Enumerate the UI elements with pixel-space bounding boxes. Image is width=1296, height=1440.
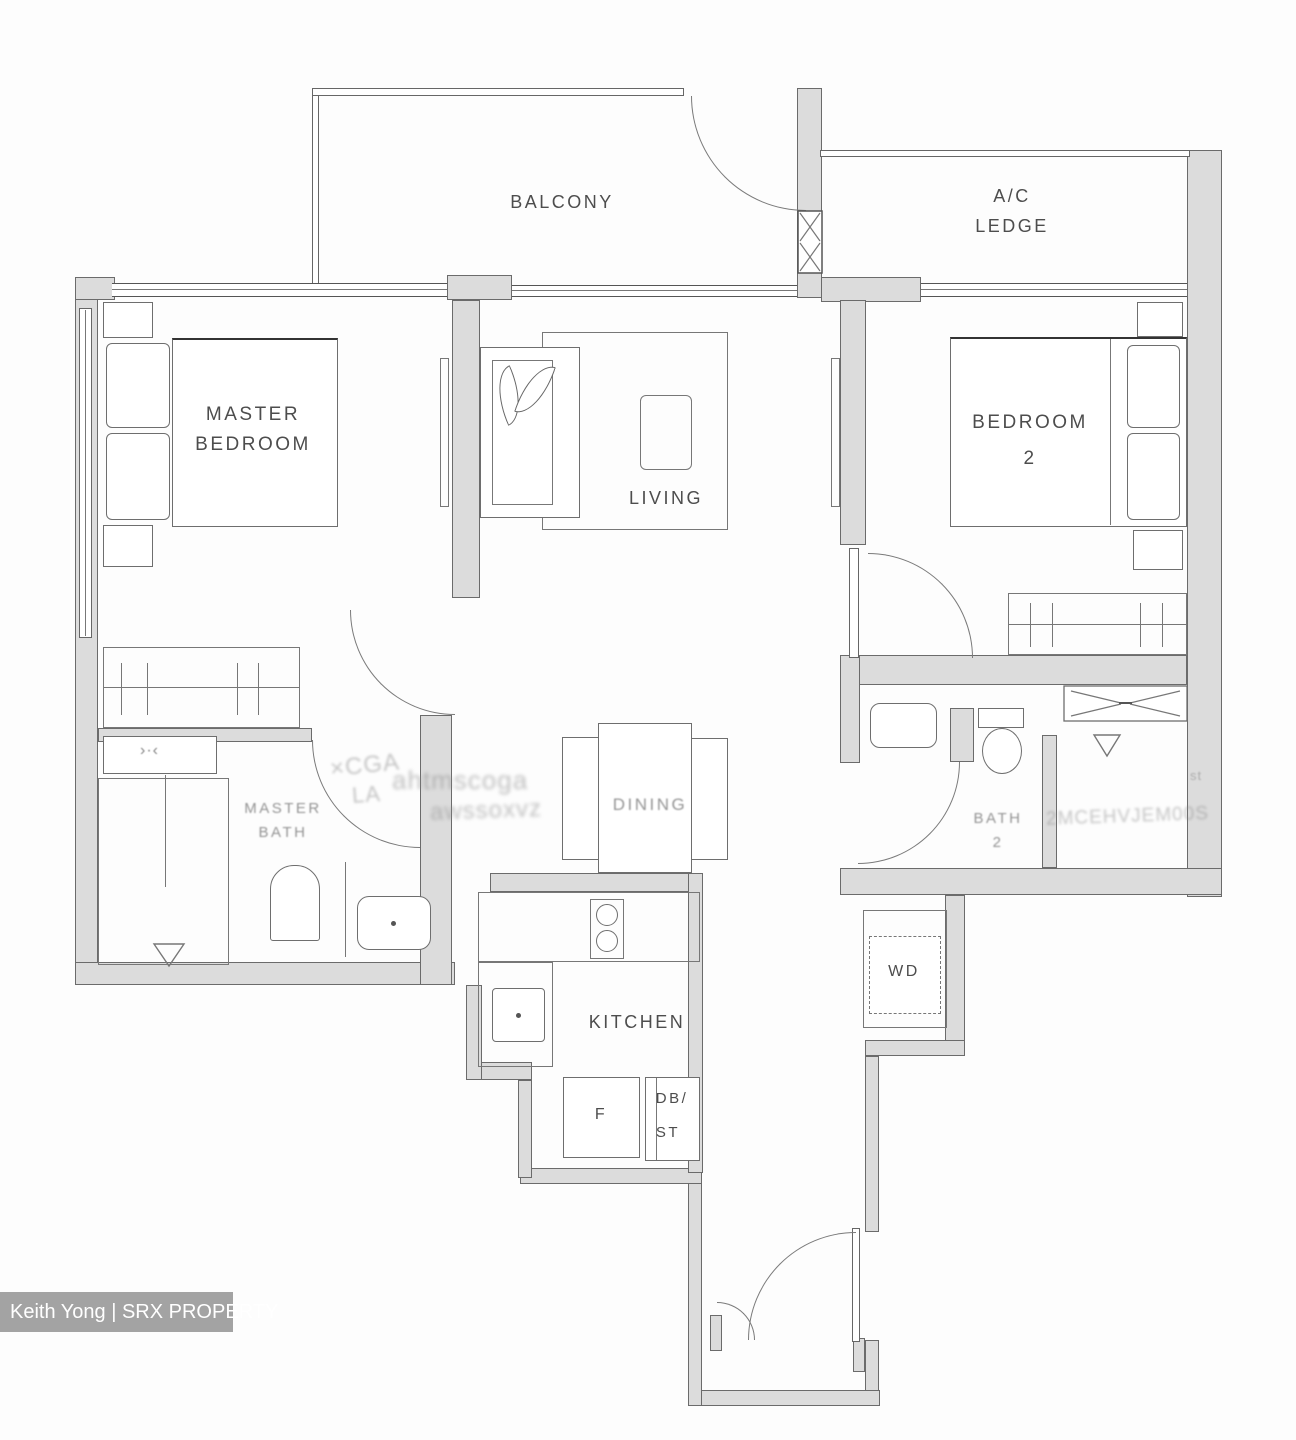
floor-plan: ›·‹ [0, 0, 1296, 1440]
mb-vanity-marks: ›·‹ [140, 742, 159, 760]
wall-top-left-pillar [75, 277, 115, 300]
wall-br2-bath2 [845, 655, 1187, 685]
br2-wardrobe-rod [1008, 624, 1187, 625]
watermark: Keith Yong | SRX PROPERTY [0, 1292, 233, 1332]
living-label: LIVING [629, 488, 703, 509]
bath2-shower-drain-icon [1092, 733, 1122, 759]
wall-step-vert [518, 1080, 532, 1178]
wall-bath2-bottom [840, 868, 1222, 895]
wall-living-br2 [840, 300, 866, 545]
bath2-sink [870, 703, 937, 748]
wall-entry-stub-right [853, 1338, 865, 1372]
mb-side-window-line [85, 310, 86, 636]
mb-pillow-1 [106, 343, 170, 428]
mb-shower [98, 778, 229, 965]
balcony-rail-top [312, 88, 684, 96]
dining-label: DINING [613, 795, 688, 815]
fridge-label: F [595, 1106, 607, 1124]
mb-toilet [270, 865, 320, 941]
wall-bath2-left [840, 655, 860, 763]
living-sliding-line [512, 290, 797, 291]
br2-door-leaf [849, 548, 859, 658]
kitchen-sink-drain [516, 1013, 521, 1018]
mb-bath-divider [345, 862, 346, 957]
dining-chair-right [690, 738, 728, 860]
mb-sink-drain [391, 921, 396, 926]
ac-ledge-label-2: LEDGE [975, 216, 1049, 237]
mb-nightstand-bottom [103, 525, 153, 567]
stove-burner-2 [596, 930, 618, 952]
bath2-label-2: 2 [993, 834, 1004, 851]
mb-wardrobe-tick1 [121, 663, 122, 715]
wall-bath-bottom [75, 962, 455, 985]
master-bedroom-door-arc [350, 610, 455, 715]
bath2-label-1: BATH [974, 810, 1023, 827]
bath2-toilet-tank [978, 708, 1024, 728]
wall-kitchen-bottom [520, 1168, 702, 1184]
br2-nightstand-bottom [1133, 530, 1183, 570]
entrance-door-arc [748, 1232, 856, 1340]
br2-nightstand-top [1137, 302, 1183, 337]
wall-wd-jog [865, 1040, 965, 1056]
mb-window-line [112, 289, 447, 290]
db-label-1: DB/ [656, 1090, 689, 1107]
master-bath-label-2: BATH [259, 824, 308, 841]
wall-hall-left [688, 1170, 702, 1406]
wall-bath2-shower [1042, 735, 1057, 868]
wall-mb-living [452, 300, 480, 598]
br2-wardrobe-tick2 [1052, 603, 1053, 647]
balcony-door-box-icon [797, 210, 823, 274]
wall-hall-right-upper [865, 1056, 879, 1232]
ac-ledge-label-1: A/C [993, 186, 1031, 207]
mb-shower-drain-icon [152, 942, 186, 968]
wall-bottom [690, 1390, 880, 1406]
coffee-table [640, 395, 692, 470]
mb-bed [172, 338, 338, 527]
master-bath-label-1: MASTER [244, 800, 322, 817]
wall-kitchen-top [490, 873, 702, 892]
br2-wardrobe-tick1 [1030, 603, 1031, 647]
stove-burner-1 [596, 904, 618, 926]
br2-door-arc [868, 553, 973, 658]
mb-vanity [103, 736, 217, 774]
br2-window-line [921, 289, 1187, 290]
bath2-door-arc [858, 762, 960, 864]
mb-pillow-2 [106, 433, 170, 520]
wall-br2-top-pillar [821, 277, 921, 302]
mb-wardrobe-rod [103, 687, 300, 688]
master-bedroom-label-1: MASTER [206, 404, 300, 426]
bedroom2-label-2: 2 [1023, 448, 1036, 470]
bath2-ledge-icon [1063, 685, 1188, 722]
br2-bed-headboard [1110, 339, 1111, 525]
br2-wardrobe-tick3 [1140, 603, 1141, 647]
mb-wardrobe-tick4 [258, 663, 259, 715]
wall-pillar-mid-top [447, 275, 512, 300]
master-bedroom-label-2: BEDROOM [195, 434, 311, 456]
wall-bath2-stub [950, 708, 974, 762]
remnant-scribble-4: awssoxvz [430, 795, 543, 827]
entrance-small-leaf-arc [717, 1302, 755, 1340]
bedroom2-label-1: BEDROOM [972, 412, 1088, 434]
dining-chair-left [562, 737, 600, 860]
kitchen-counter-top [478, 892, 700, 962]
mb-wardrobe-tick3 [237, 663, 238, 715]
ac-ledge-top-line [820, 150, 1190, 157]
remnant-scribble-3: ahtmscoga [392, 765, 528, 796]
br2-wardrobe-tick4 [1162, 603, 1163, 647]
mb-shower-hose [165, 775, 166, 887]
wall-wd-right [945, 895, 965, 1045]
tv-panel-mb [440, 358, 449, 507]
mb-wardrobe-tick2 [147, 663, 148, 715]
remnant-scribble-6: st [1190, 768, 1202, 783]
remnant-scribble-5: 2MCEHVJEM00S [1046, 803, 1210, 831]
balcony-door-arc [691, 96, 806, 211]
wd-label: WD [888, 963, 920, 981]
br2-pillow-1 [1127, 345, 1180, 428]
tv-panel-living [831, 358, 840, 507]
balcony-rail-left [312, 88, 319, 285]
db-label-2: ST [656, 1124, 680, 1141]
remnant-scribble-2: LA [351, 781, 382, 809]
kitchen-label: KITCHEN [589, 1012, 686, 1033]
bath2-toilet-bowl [982, 728, 1022, 774]
balcony-label: BALCONY [510, 192, 614, 213]
br2-pillow-2 [1127, 433, 1180, 520]
mb-nightstand-top [103, 302, 153, 338]
wall-right-outer [1187, 150, 1222, 897]
